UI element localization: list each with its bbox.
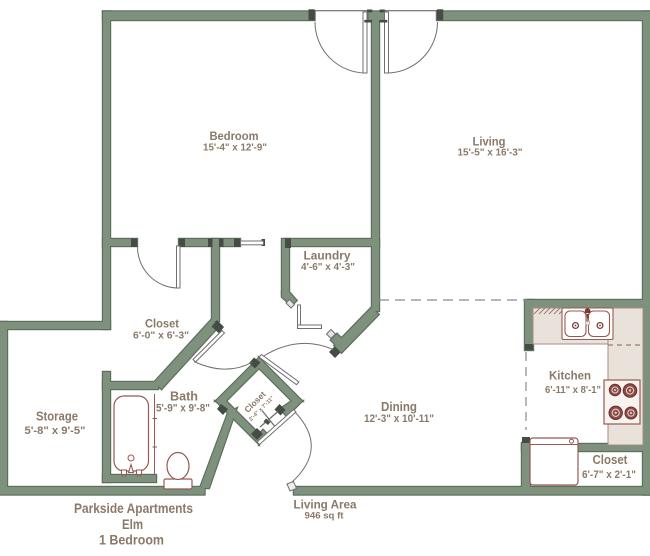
svg-text:4'-6" x 4'-3": 4'-6" x 4'-3"	[301, 261, 355, 273]
svg-text:6'-11" x 8'-1": 6'-11" x 8'-1"	[545, 384, 601, 396]
svg-text:5'-8" x 9'-5": 5'-8" x 9'-5"	[25, 425, 86, 437]
svg-text:12'-3" x 10'-11": 12'-3" x 10'-11"	[364, 413, 434, 425]
svg-text:Bath: Bath	[170, 389, 198, 404]
svg-text:1 Bedroom: 1 Bedroom	[99, 532, 164, 548]
svg-text:Dining: Dining	[381, 399, 417, 414]
svg-text:5'-9" x 9'-8": 5'-9" x 9'-8"	[156, 403, 210, 415]
svg-text:Parkside Apartments: Parkside Apartments	[74, 500, 193, 516]
svg-text:Kitchen: Kitchen	[549, 371, 591, 383]
svg-text:Closet: Closet	[593, 453, 629, 467]
svg-text:946 sq ft: 946 sq ft	[305, 511, 345, 522]
svg-text:15'-5" x 16'-3": 15'-5" x 16'-3"	[458, 147, 523, 159]
svg-text:15'-4" x 12'-9": 15'-4" x 12'-9"	[203, 142, 267, 154]
svg-text:6'-0" x 6'-3": 6'-0" x 6'-3"	[133, 330, 189, 342]
svg-text:Storage: Storage	[36, 409, 78, 424]
svg-text:6'-7" x 2'-1": 6'-7" x 2'-1"	[582, 469, 636, 481]
svg-text:Elm: Elm	[122, 516, 143, 532]
